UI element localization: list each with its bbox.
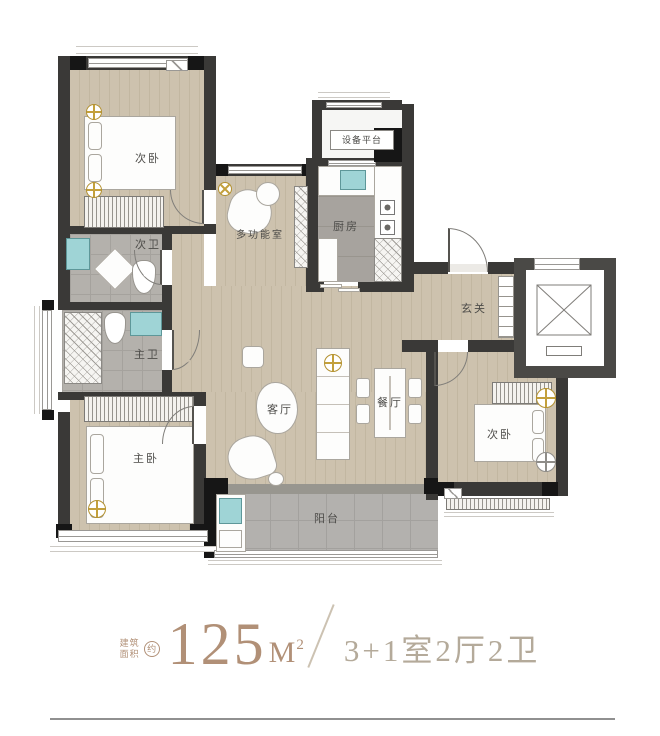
- area-unit-letter: M: [269, 636, 296, 669]
- wall: [162, 285, 172, 330]
- ceiling-light-icon: [88, 500, 106, 518]
- elevator-x-graphic: [536, 284, 592, 336]
- bathroom-sink: [66, 238, 90, 270]
- wall: [312, 100, 322, 162]
- room-label-bedroom-right: 次卧: [472, 426, 528, 442]
- area-superscript: 2: [296, 637, 304, 653]
- wall: [214, 478, 228, 494]
- ceiling-light-icon: [536, 452, 556, 472]
- window-sill-hatch: [446, 498, 550, 510]
- stove-burner: [380, 200, 395, 215]
- wall: [468, 340, 516, 352]
- balcony-threshold: [228, 484, 424, 494]
- window-sill: [444, 512, 554, 517]
- layout-spec: 3+1室2厅2卫: [344, 635, 540, 666]
- wall: [58, 56, 70, 310]
- pillow: [88, 122, 102, 150]
- area-prefix: 建筑 面积 约: [120, 638, 160, 661]
- equipment-platform-label-box: 设备平台: [330, 130, 394, 150]
- window-sill: [208, 560, 442, 565]
- room-label-bedroom-master: 主卧: [118, 450, 174, 466]
- window-sill: [50, 546, 216, 552]
- bottom-divider-line: [50, 718, 615, 720]
- area-prefix-line2: 面积: [120, 649, 140, 660]
- elevator-door: [546, 346, 582, 356]
- ceiling-light-icon: [86, 104, 102, 120]
- room-label-bath-second: 次卫: [122, 236, 174, 252]
- area-prefix-line1: 建筑: [120, 638, 140, 649]
- ac-unit-box: [444, 488, 462, 499]
- room-label-entry: 玄关: [448, 300, 500, 316]
- wall: [402, 262, 448, 274]
- wall: [488, 262, 516, 274]
- ceiling-light-icon: [324, 354, 342, 372]
- side-table: [242, 346, 264, 368]
- ceiling-light-icon: [536, 388, 556, 408]
- room-label-living: 客厅: [254, 401, 306, 417]
- window-sill: [76, 46, 198, 54]
- room-label-bedroom-top: 次卧: [120, 150, 176, 166]
- pillow: [90, 434, 104, 474]
- pillow: [88, 154, 102, 182]
- area-caption: 建筑 面积 约 125 M2 3+1室2厅2卫: [0, 602, 660, 670]
- wardrobe: [84, 196, 164, 228]
- shower-area: [64, 312, 102, 384]
- hall-strip-floor: [172, 234, 204, 290]
- window: [326, 102, 382, 108]
- area-prefix-text: 建筑 面积: [120, 638, 140, 661]
- wall: [204, 56, 216, 190]
- wall: [162, 370, 172, 392]
- window: [228, 166, 302, 174]
- room-label-multifunction: 多功能室: [222, 226, 298, 241]
- room-label-bath-master: 主卫: [121, 346, 173, 362]
- balcony-railing: [214, 550, 438, 558]
- wall: [358, 282, 414, 292]
- laundry-sink: [219, 530, 242, 548]
- fridge-space: [374, 238, 402, 282]
- room-label-equipment-platform: 设备平台: [342, 135, 382, 145]
- ceiling-light-icon: [86, 182, 102, 198]
- room-label-balcony: 阳台: [300, 510, 354, 526]
- wall: [58, 412, 70, 530]
- floor-plan: 设备平台 次卧 次卫 主卫 主卧 多功能室 厨房 玄关 客厅 餐厅: [0, 0, 660, 736]
- window-sill: [318, 92, 390, 98]
- area-value: 125: [168, 619, 267, 670]
- slash-divider: [307, 604, 334, 668]
- ottoman: [268, 472, 284, 486]
- front-door-swing: [448, 228, 488, 272]
- wall: [556, 368, 568, 496]
- pillow: [532, 410, 544, 434]
- sliding-door: [338, 288, 360, 292]
- area-unit: M2: [269, 638, 304, 668]
- wall: [194, 392, 206, 406]
- bathroom-sink: [130, 312, 162, 336]
- approx-badge: 约: [144, 641, 160, 657]
- wall: [42, 410, 54, 420]
- wall: [58, 302, 162, 310]
- bay-window: [58, 530, 208, 542]
- room-label-kitchen: 厨房: [324, 218, 368, 234]
- side-table: [256, 182, 280, 206]
- wall: [424, 478, 438, 494]
- kitchen-sink: [340, 170, 366, 190]
- room-label-dining: 餐厅: [365, 394, 415, 410]
- ac-unit-box: [166, 60, 188, 71]
- wall: [216, 164, 228, 176]
- stove-burner: [380, 220, 395, 235]
- wall: [42, 300, 54, 310]
- bay-window-sill: [34, 306, 40, 414]
- washing-machine: [219, 498, 242, 524]
- shoe-cabinet: [498, 276, 514, 338]
- kitchen-counter: [318, 238, 338, 282]
- bay-window: [42, 310, 52, 410]
- wall: [542, 482, 558, 496]
- elevator-opening: [534, 258, 580, 270]
- elevator-shaft-icon: [536, 284, 592, 336]
